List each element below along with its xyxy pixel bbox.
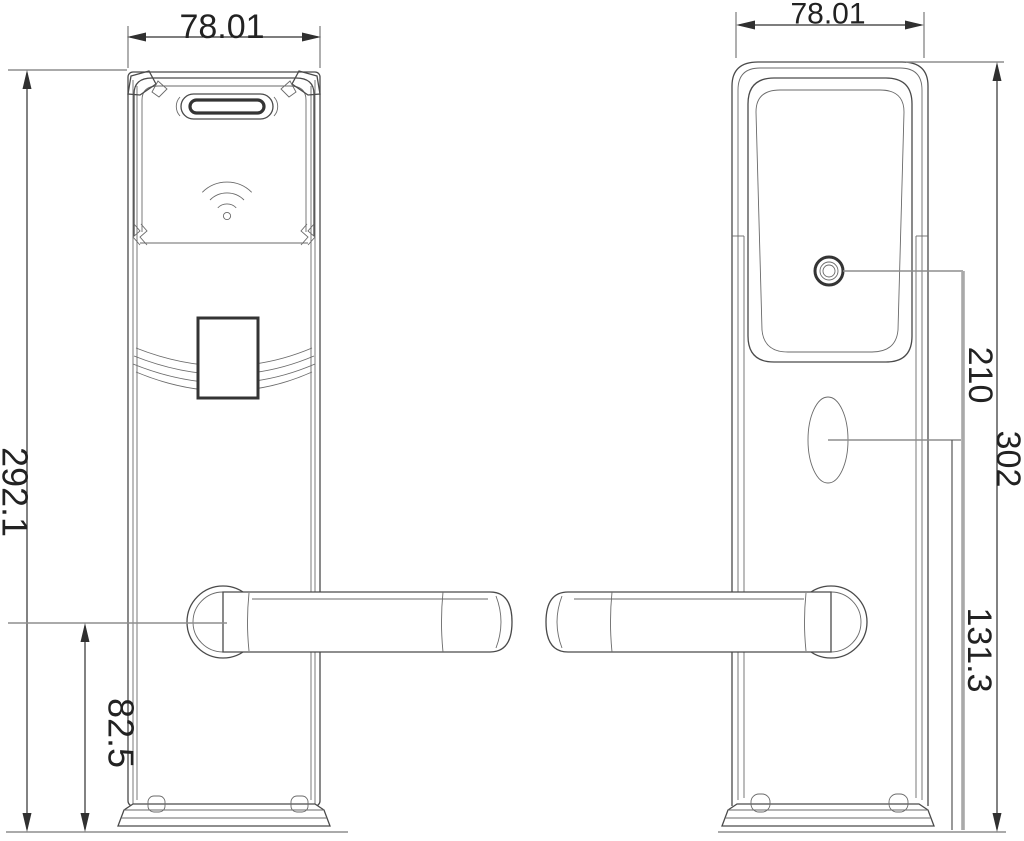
front-handle xyxy=(187,586,512,658)
back-cover xyxy=(748,78,912,362)
front-view xyxy=(118,71,512,826)
card-slot xyxy=(176,94,277,119)
dimension-label-back-width: 78.01 xyxy=(790,0,865,31)
dimension-label-cylinder-height: 210 xyxy=(961,347,999,404)
dimension-label-handle-height: 82.5 xyxy=(100,698,141,768)
dimension-label-oval-height: 131.3 xyxy=(960,607,998,692)
back-base-flange xyxy=(722,804,934,826)
back-handle xyxy=(546,586,867,658)
key-cylinder xyxy=(815,257,843,285)
dimension-front-height: 292.1 xyxy=(0,70,348,832)
dimension-front-width: 78.01 xyxy=(127,8,321,68)
housing-break-marks xyxy=(133,224,315,245)
lock-dimension-drawing: 78.01 78.01 292.1 82.5 210 131.3 xyxy=(0,0,1024,841)
dimension-handle-height: 82.5 xyxy=(8,623,227,832)
dimension-label-back-height: 302 xyxy=(989,431,1024,488)
dimension-cylinder-height: 210 xyxy=(843,271,999,830)
housing-corner-bevels xyxy=(128,71,320,97)
dimension-label-front-height: 292.1 xyxy=(0,447,35,537)
dimension-label-front-width: 78.01 xyxy=(179,8,264,46)
rfid-signal-icon xyxy=(202,182,251,220)
back-view xyxy=(546,62,934,826)
drawing-sheet: 78.01 78.01 292.1 82.5 210 131.3 xyxy=(0,0,1024,841)
front-base-flange xyxy=(118,804,330,826)
card-window xyxy=(198,318,258,398)
dimension-back-height: 302 xyxy=(718,62,1024,832)
back-plate xyxy=(732,62,928,806)
dimension-back-width: 78.01 xyxy=(736,0,924,58)
